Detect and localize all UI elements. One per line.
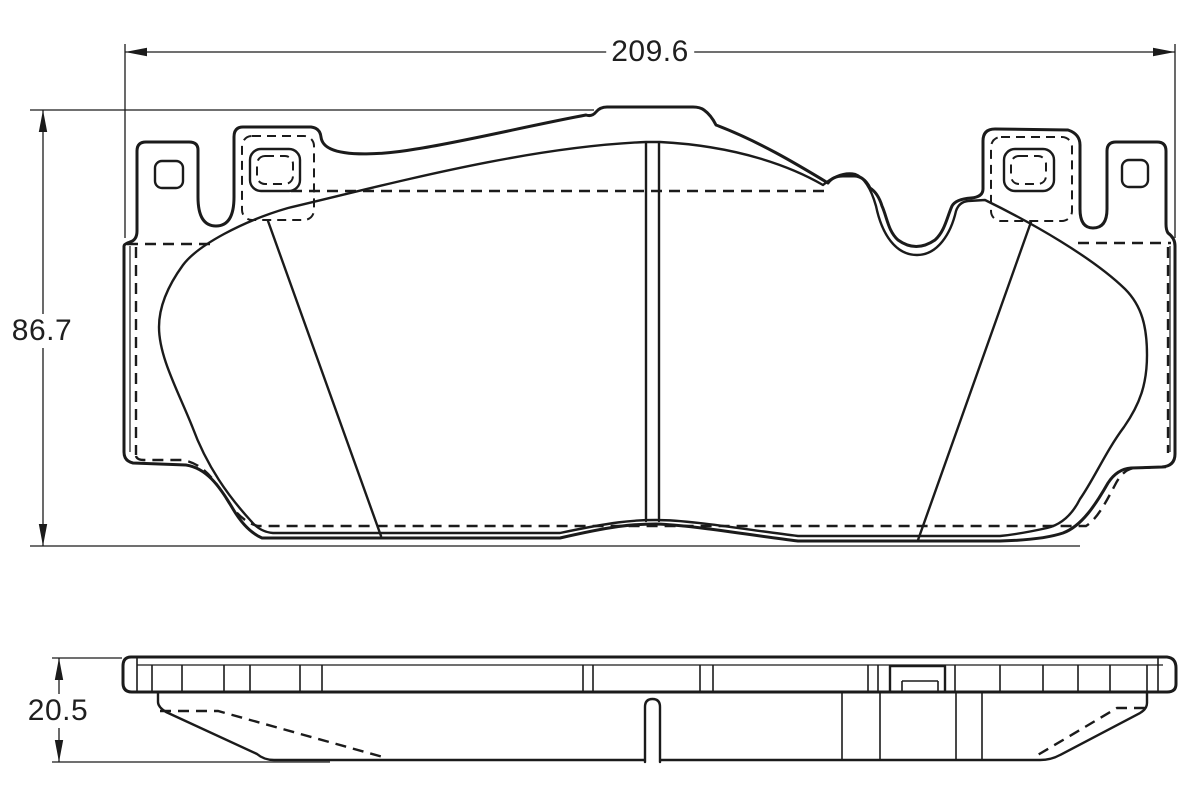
bottom-view — [123, 657, 1176, 762]
hidden-lines-front — [127, 136, 1171, 526]
thickness-dimension-label: 20.5 — [23, 694, 93, 728]
drawing-canvas: 209.6 86.7 20.5 — [0, 0, 1200, 800]
front-view — [124, 107, 1175, 541]
ear-hole-outer-right — [1122, 160, 1148, 187]
strip-ticks — [152, 665, 1147, 692]
hidden-chamfer-right — [1036, 708, 1145, 756]
center-slot-bottom — [645, 699, 660, 762]
backplate-strip — [123, 657, 1176, 692]
hidden-chamfer-left — [160, 711, 383, 757]
width-dimension-label: 209.6 — [606, 35, 694, 69]
friction-material-front — [159, 142, 1147, 536]
drawing-svg — [0, 0, 1200, 800]
clip-notch — [890, 666, 945, 692]
center-slot-front — [646, 143, 659, 521]
chamfer-line-right — [918, 222, 1031, 540]
friction-projection-lines — [842, 692, 982, 760]
ear-hole-outer-left — [155, 161, 183, 188]
dimension-thickness — [52, 658, 330, 762]
backplate-outline — [124, 107, 1175, 541]
height-dimension-label: 86.7 — [7, 314, 77, 348]
chamfer-line-left — [268, 221, 381, 536]
dimension-height — [30, 110, 1080, 546]
